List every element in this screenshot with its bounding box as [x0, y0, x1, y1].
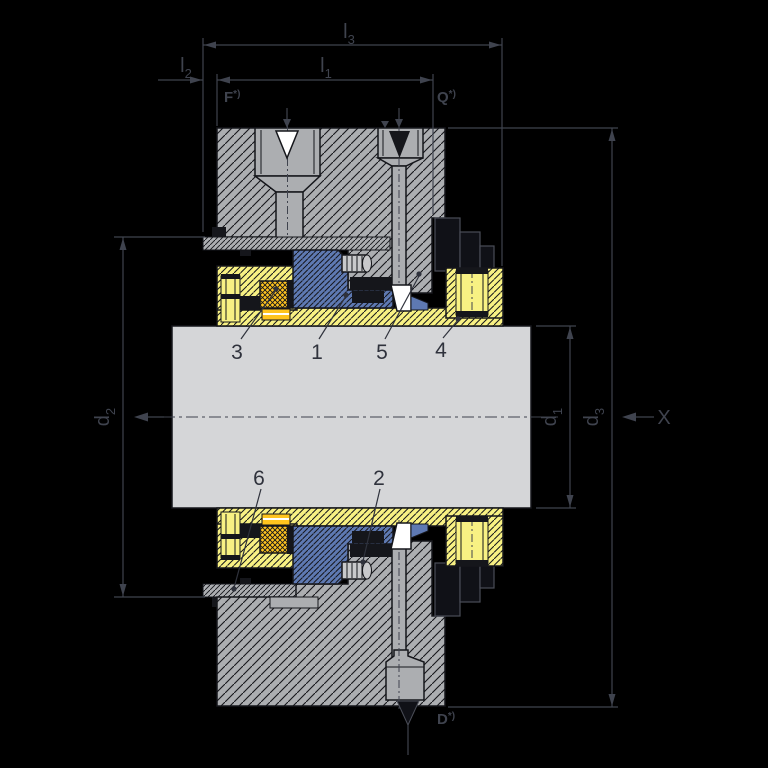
- spring-top: [342, 255, 372, 272]
- spring-bottom: [342, 562, 372, 579]
- part-number-4: 4: [435, 339, 447, 362]
- dimension-l2: l2: [158, 55, 203, 84]
- flush-port-label: F*): [224, 89, 240, 106]
- section-x-arrow: X: [622, 407, 671, 429]
- seat-bottom: [260, 514, 294, 554]
- seal-ring-wedge-bottom: [411, 524, 428, 538]
- seal-ring-wedge-top: [411, 296, 428, 310]
- technical-drawing-canvas: l3 l2 l1 d2 d1 d3 X: [0, 0, 768, 768]
- drain-port-arrow: [397, 701, 419, 755]
- dim-label-d2: d2: [92, 408, 118, 426]
- seal-face-wedge-bottom: [391, 523, 411, 549]
- part-number-3: 3: [231, 341, 243, 364]
- drive-collar-dark-top: [435, 218, 494, 271]
- drive-collar-dark-bottom: [435, 563, 494, 616]
- dim-label-l2: l2: [180, 55, 192, 81]
- seat-top: [260, 280, 294, 320]
- drain-port-label: D*): [437, 711, 455, 728]
- part-number-1: 1: [311, 341, 323, 364]
- dim-label-l3: l3: [343, 21, 355, 47]
- seal-drawing-svg: l3 l2 l1 d2 d1 d3 X: [0, 0, 768, 768]
- dim-label-d3: d3: [581, 408, 607, 426]
- centerline-arrow-left: [134, 413, 164, 422]
- seal-face-wedge-top: [391, 285, 411, 311]
- set-collar-bottom: [446, 516, 503, 566]
- set-collar-top: [446, 268, 503, 318]
- section-x-label: X: [657, 407, 670, 429]
- quench-port-label: Q*): [437, 89, 456, 106]
- dim-label-d1: d1: [539, 408, 565, 426]
- part-number-2: 2: [373, 467, 385, 490]
- part-number-5: 5: [376, 341, 388, 364]
- dim-label-l1: l1: [320, 55, 332, 81]
- part-number-6: 6: [253, 467, 265, 490]
- dimension-d1: d1: [536, 326, 576, 508]
